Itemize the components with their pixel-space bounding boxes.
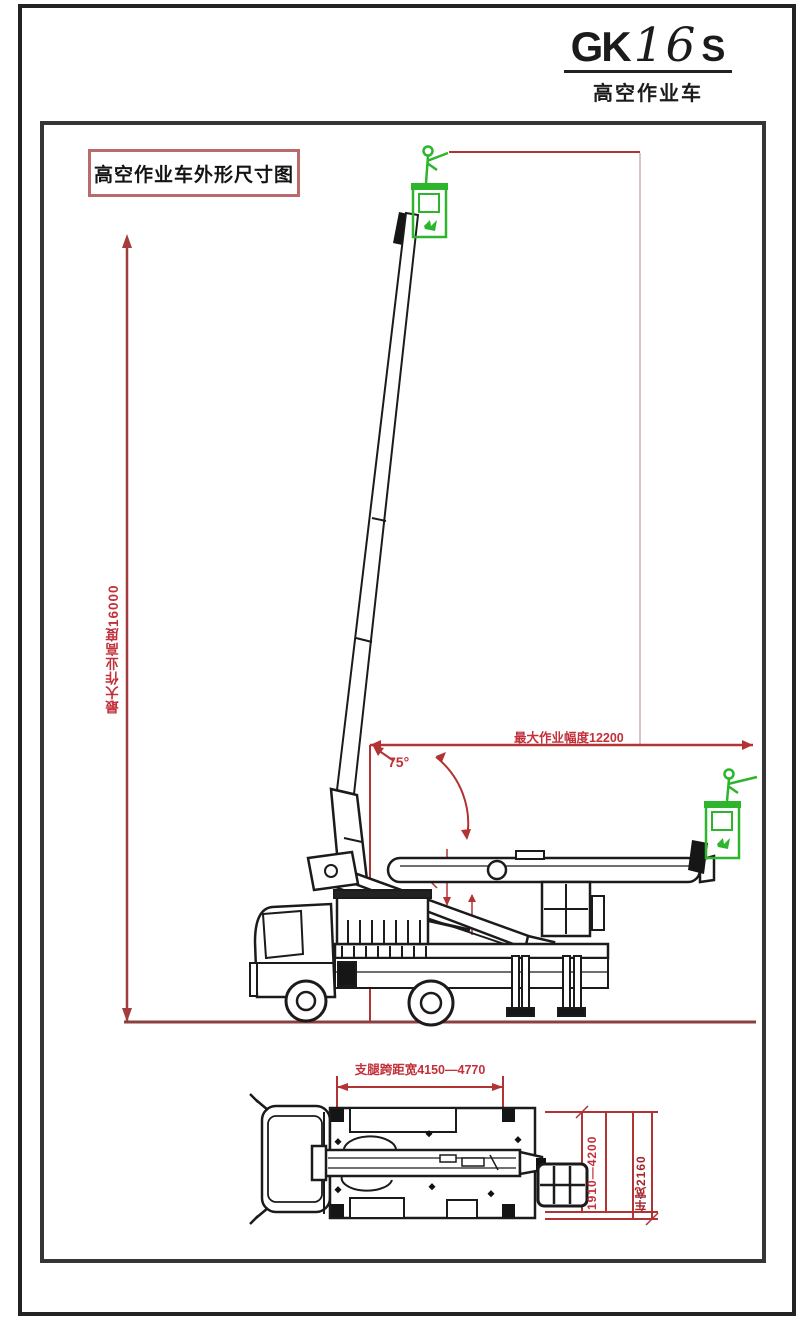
outrigger-span-label: 支腿跨距宽4150—4770	[337, 1059, 503, 1078]
vehicle-width-label: 车宽2160	[632, 1126, 648, 1212]
extended-boom	[331, 212, 418, 886]
truck-side-view	[250, 840, 714, 1025]
basket-top-view	[538, 1164, 587, 1206]
max-height-dimension-label: 最大作业高度16000	[104, 550, 124, 714]
basket-logo-icon	[717, 838, 730, 849]
rear-cabinet	[542, 882, 604, 936]
stowed-boom	[388, 851, 714, 882]
right-basket	[704, 770, 757, 859]
outrigger-width-range-label: 1910—4200	[585, 1118, 601, 1210]
max-radius-dimension-label: 最大作业幅度12200	[514, 727, 624, 746]
boom-top-view	[312, 1146, 546, 1180]
truck-top-view	[250, 1094, 587, 1224]
operator-icon	[725, 770, 758, 802]
page-root: GK 16 S 高空作业车 高空作业车外形尺寸图	[0, 0, 800, 1324]
operator-icon	[424, 147, 449, 184]
boom-angle-label: 75°	[388, 754, 409, 770]
basket-logo-icon	[424, 220, 437, 231]
truck-cab	[250, 904, 335, 997]
